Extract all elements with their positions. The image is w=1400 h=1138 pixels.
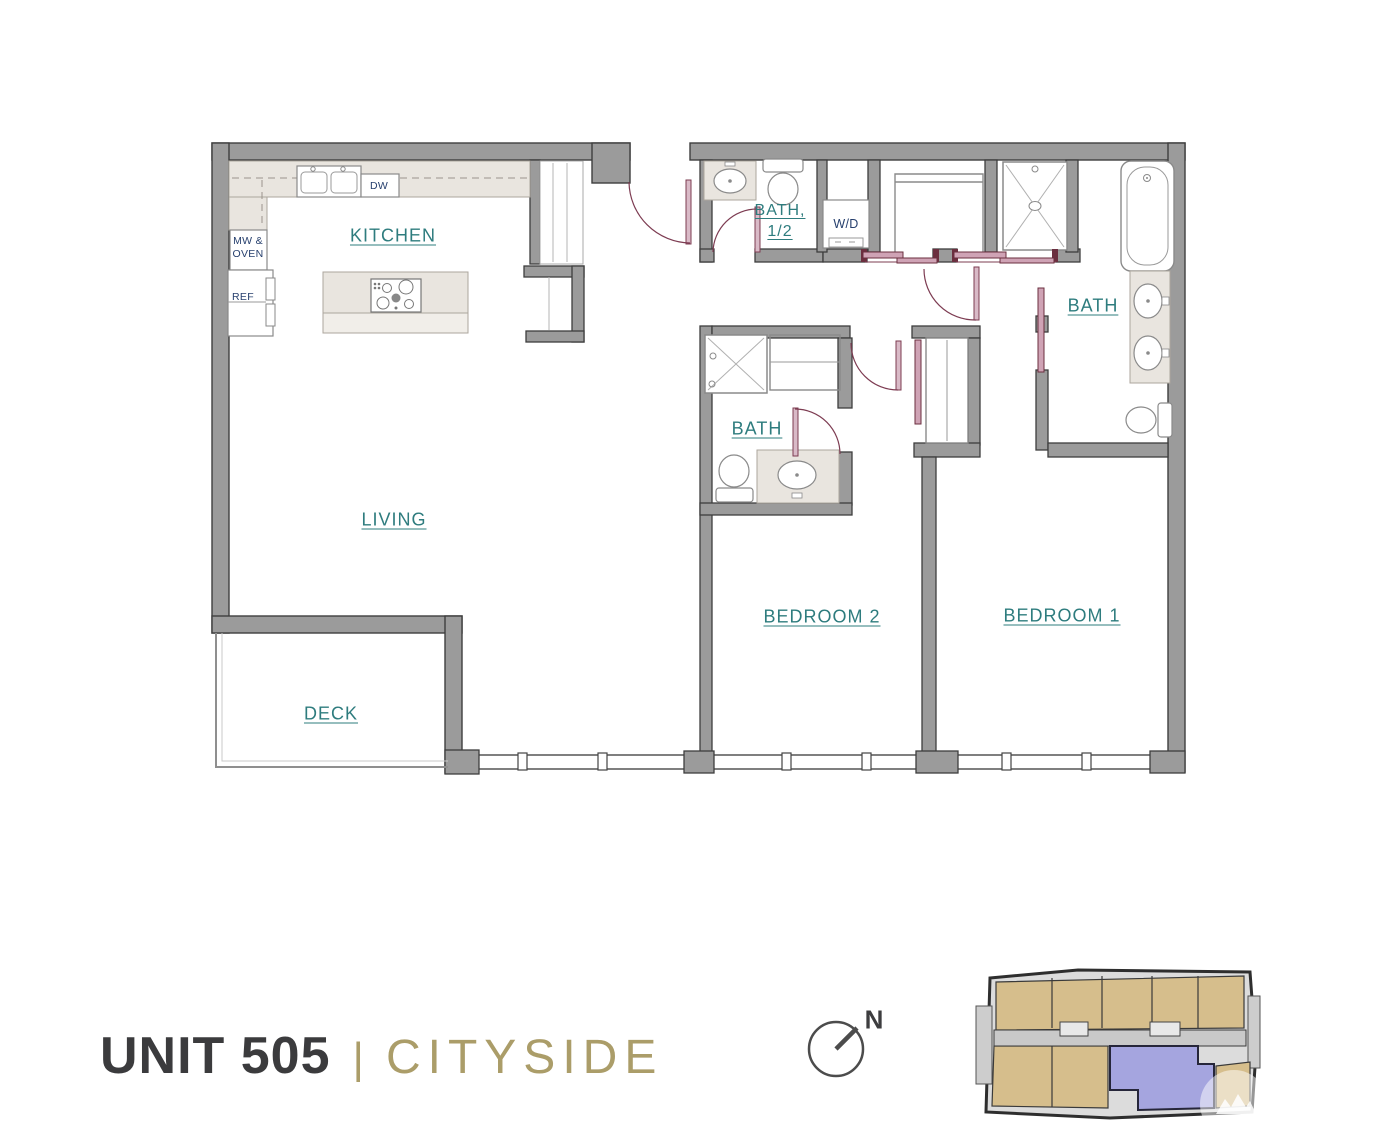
north-compass xyxy=(809,1022,863,1076)
window-wall xyxy=(445,750,1185,774)
deck-railing xyxy=(216,633,448,767)
refrigerator-box xyxy=(228,270,275,336)
toilet-half-bath xyxy=(763,159,803,205)
dishwasher-label: DW xyxy=(370,180,388,192)
unit-number: UNIT 505 xyxy=(100,1026,331,1086)
hall-door xyxy=(924,267,979,320)
kitchen-island xyxy=(323,272,468,333)
bath2-vanity xyxy=(757,450,839,503)
kitchen-label: KITCHEN xyxy=(350,226,436,247)
bath-half-label-line1: BATH, xyxy=(755,202,806,220)
interior-walls xyxy=(524,160,1168,760)
master-vanity xyxy=(1130,271,1170,383)
floor-plan-drawing xyxy=(0,0,1400,1138)
watermark xyxy=(1200,1070,1268,1138)
bedroom2-door xyxy=(851,341,901,390)
north-label: N xyxy=(865,1005,884,1036)
mw-oven-label-line2: OVEN xyxy=(233,248,264,260)
bath2-toilet xyxy=(716,455,753,502)
entry-door xyxy=(629,180,691,244)
deck-label: DECK xyxy=(304,704,358,725)
title-separator: | xyxy=(353,1034,364,1084)
plan-name: CITYSIDE xyxy=(386,1030,663,1085)
plan-title: UNIT 505 | CITYSIDE xyxy=(100,1026,663,1086)
master-toilet xyxy=(1126,403,1172,437)
walk-in-closet xyxy=(895,174,983,252)
bath2-label: BATH xyxy=(732,419,783,440)
mw-oven-label-line1: MW & xyxy=(233,235,263,247)
building-key-plan xyxy=(976,970,1268,1138)
bath2-door xyxy=(793,408,840,456)
living-label: LIVING xyxy=(361,510,426,531)
kitchen-sink xyxy=(297,166,361,197)
bath-half-fixtures xyxy=(704,159,803,205)
bedroom1-label: BEDROOM 1 xyxy=(1003,606,1120,627)
bath-main-label: BATH xyxy=(1068,296,1119,317)
bath-half-door xyxy=(713,207,760,252)
bath-half-label-line2: 1/2 xyxy=(767,223,792,241)
bedroom2-label: BEDROOM 2 xyxy=(763,607,880,628)
master-shower xyxy=(1003,162,1067,250)
refrigerator-label: REF xyxy=(232,291,254,303)
bedroom2-closet xyxy=(926,338,968,443)
floor-plan-page: KITCHEN LIVING DECK BEDROOM 2 BEDROOM 1 … xyxy=(0,0,1400,1138)
washer-dryer-label: W/D xyxy=(833,217,858,231)
master-tub xyxy=(1121,161,1174,271)
